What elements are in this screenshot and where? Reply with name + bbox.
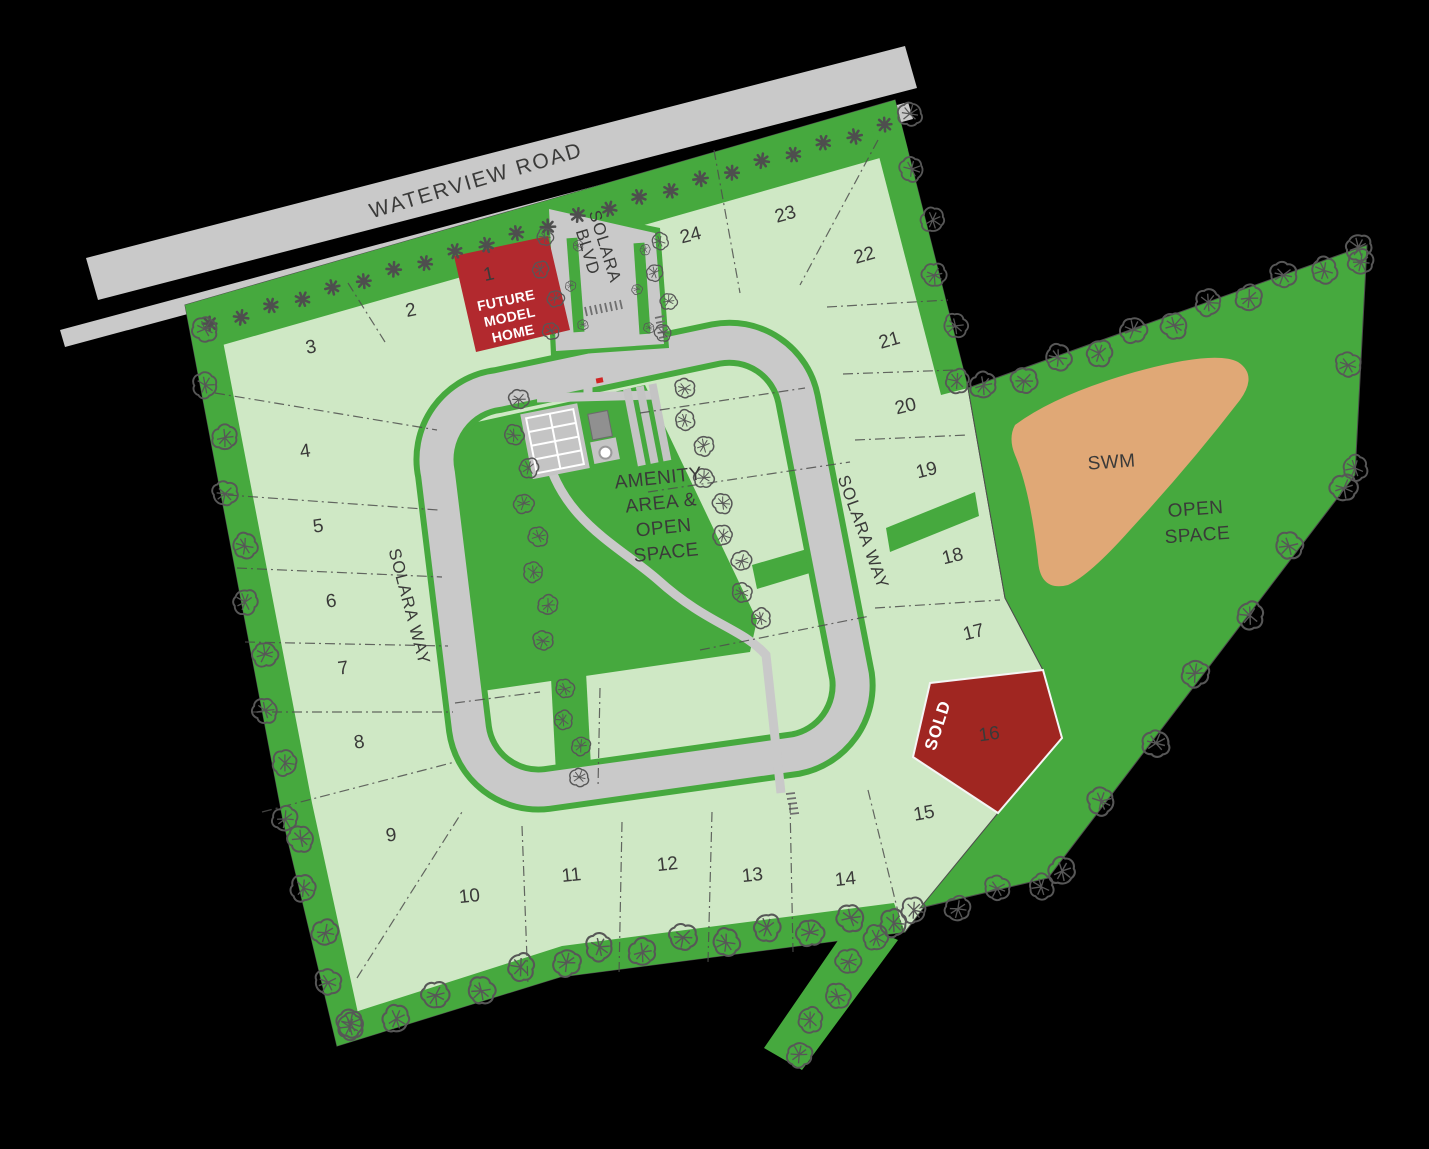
lot-13-label[interactable]: 13 bbox=[741, 864, 764, 887]
open-space-label-line1: OPEN bbox=[1167, 497, 1224, 522]
tennis-court-icon bbox=[520, 403, 590, 479]
site-plan-svg: WATERVIEW ROAD bbox=[0, 0, 1429, 1149]
lot-16-label[interactable]: 16 bbox=[977, 723, 1001, 747]
lot-10-label[interactable]: 10 bbox=[458, 885, 481, 908]
blvd-median bbox=[639, 243, 645, 334]
lot-11-label[interactable]: 11 bbox=[561, 864, 583, 887]
lot-15-label[interactable]: 15 bbox=[912, 801, 936, 825]
lot-14-label[interactable]: 14 bbox=[834, 868, 858, 891]
swm-label: SWM bbox=[1087, 450, 1136, 474]
site-plan-map: WATERVIEW ROAD bbox=[0, 0, 1429, 1149]
lot-12-label[interactable]: 12 bbox=[656, 853, 679, 876]
